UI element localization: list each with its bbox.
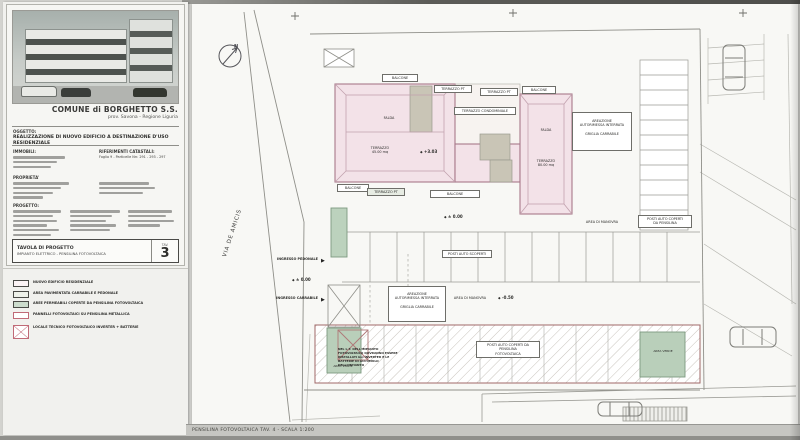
- scanned-drawing-photo: COMUNE di BORGHETTO S.S. prov. Savona - …: [0, 0, 800, 440]
- legend: NUOVO EDIFICIO RESIDENZIALE AREA PAVIMEN…: [13, 280, 181, 342]
- legend-label: PANNELLI FOTOVOLTAICI SU PENSILINA METAL…: [33, 312, 153, 317]
- legend-label: AREA PAVIMENTATA CARRABILE E PEDONALE: [33, 291, 153, 296]
- tavola-box: TAVOLA DI PROGETTO IMPIANTO ELETTRICO - …: [12, 239, 179, 263]
- north-letter: N: [234, 44, 238, 50]
- blurred-text-line: [13, 224, 47, 227]
- catasto-label: RIFERIMENTI CATASTALI:: [99, 149, 179, 154]
- blurred-text-line: [13, 210, 61, 213]
- proprieta-label: PROPRIETA': [13, 175, 93, 180]
- blurred-text-line: [99, 182, 149, 185]
- progetto-row: PROGETTO:: [13, 203, 179, 238]
- progetto-label: PROGETTO:: [13, 203, 64, 208]
- ingresso-carrabile-label: INGRESSO CARRABILE: [276, 296, 318, 300]
- blurred-text-line: [70, 229, 110, 232]
- legend-label: LOCALE TECNICO FOTOVOLTAICO INVERTER + B…: [33, 325, 153, 330]
- level-marker: ◆ ± 0.00: [292, 277, 311, 282]
- blurred-text-line: [128, 210, 172, 213]
- oggetto-section: OGGETTO: REALIZZAZIONE DI NUOVO EDIFICIO…: [13, 129, 178, 146]
- blurred-text-line: [13, 187, 61, 190]
- catasto-column: RIFERIMENTI CATASTALI: Foglio 9 - Partic…: [99, 149, 179, 170]
- blurred-text-line: [13, 182, 69, 185]
- catasto-text: Foglio 9 - Particelle Nrr. 291 - 293 - 2…: [99, 155, 179, 159]
- divider: [12, 126, 179, 127]
- balcone-label: BALCONE: [382, 74, 418, 82]
- balcone-label: BALCONE: [430, 190, 480, 198]
- legend-swatch-locale-tecnico: [13, 325, 29, 339]
- level-marker-icon: ◆: [292, 278, 295, 282]
- level-marker: ◆ +3.03: [420, 149, 437, 154]
- building-render-photo: [12, 10, 179, 104]
- tavola-label: TAVOLA DI PROGETTO: [17, 246, 147, 251]
- blurred-text-line: [99, 192, 143, 195]
- level-marker: ◆ -0.50: [498, 295, 514, 300]
- proprieta-column: PROPRIETA': [13, 175, 93, 201]
- photo-right-shadow: [790, 0, 800, 440]
- legend-label: NUOVO EDIFICIO RESIDENZIALE: [33, 280, 153, 285]
- terrazzo-80-label: TERRAZZO80.00 mq: [530, 159, 562, 168]
- photo-bottom-edge: [0, 436, 800, 440]
- site-plan-drawing: [192, 4, 798, 424]
- area-verde-label: AREA VERDE: [327, 365, 359, 369]
- terrazzo-pt-label: TERRAZZO PT: [434, 85, 472, 93]
- legend-item: PANNELLI FOTOVOLTAICI SU PENSILINA METAL…: [13, 312, 181, 319]
- entrance-arrow-icon: ▶: [321, 298, 325, 303]
- oggetto-label: OGGETTO:: [13, 129, 178, 134]
- photo-building-right: [129, 19, 173, 83]
- entrance-arrow-icon: ▶: [321, 259, 325, 264]
- posti-fv-label: POSTI AUTO COPERTI DA PENSILINAFOTOVOLTA…: [476, 341, 540, 358]
- legend-item: AREA PAVIMENTATA CARRABILE E PEDONALE: [13, 291, 181, 298]
- tavola-subject: IMPIANTO ELETTRICO - PENSILINA FOTOVOLTA…: [17, 252, 147, 256]
- level-marker: ◆ ± 0.00: [444, 214, 463, 219]
- level-marker-icon: ◆: [444, 215, 447, 219]
- divider: [12, 145, 179, 146]
- blurred-text-line: [13, 234, 51, 237]
- tavola-number-cell: TAV. 3: [151, 240, 178, 262]
- falda-label: FALDA: [374, 116, 404, 120]
- blurred-text-line: [128, 215, 166, 218]
- legend-swatch-panels: [13, 312, 29, 319]
- blurred-text-line: [13, 196, 43, 199]
- terrazzo-45-label: TERRAZZO45.00 mq: [360, 146, 400, 155]
- blurred-text-line: [13, 229, 59, 232]
- blurred-text-line: [70, 210, 120, 213]
- blurred-text-line: [13, 215, 53, 218]
- blurred-text-line: [13, 192, 53, 195]
- immobili-column: IMMOBILI:: [13, 149, 93, 170]
- posti-coperti-label: POSTI AUTO COPERTIDA PENSILINA: [638, 215, 692, 228]
- area-manovra-label: AREA DI MANOVRA: [580, 220, 624, 224]
- legend-item: AREE PERMEABILI COPERTE DA PENSILINA FOT…: [13, 301, 181, 308]
- legend-swatch-building: [13, 280, 29, 287]
- blurred-text-line: [70, 220, 106, 223]
- areazione-autorimessa-box: AREAZIONE AUTORIMESSA INTERRATA GRIGLIA …: [388, 286, 446, 322]
- falda-label: FALDA: [532, 128, 560, 132]
- immobili-label: IMMOBILI:: [13, 149, 93, 154]
- balcone-label: BALCONE: [337, 184, 369, 192]
- blurred-text-line: [13, 156, 65, 159]
- area-verde-label: AREA VERDE: [644, 350, 682, 354]
- blurred-text-line: [13, 161, 57, 164]
- commune-title: COMUNE di BORGHETTO S.S. prov. Savona - …: [13, 105, 178, 120]
- blurred-text-line: [99, 187, 155, 190]
- tav-number: 3: [152, 247, 178, 260]
- photo-building-left: [25, 29, 127, 83]
- photo-car: [133, 88, 167, 97]
- ingresso-pedonale-label: INGRESSO PEDONALE: [276, 257, 318, 261]
- blurred-text-line: [13, 166, 51, 169]
- areazione-autorimessa-box: AREAZIONE AUTORIMESSA INTERRATA GRIGLIA …: [572, 112, 632, 151]
- proprieta-column-2: [99, 175, 179, 201]
- level-marker-icon: ◆: [420, 150, 423, 154]
- footer-text: PENSILINA FOTOVOLTAICA TAV. 4 - SCALA 1:…: [186, 425, 800, 433]
- sheet-fold-line: [3, 268, 188, 269]
- posti-scoperti-label: POSTI AUTO SCOPERTI: [442, 250, 492, 258]
- title-block-sheet: COMUNE di BORGHETTO S.S. prov. Savona - …: [3, 2, 188, 435]
- legend-label: AREE PERMEABILI COPERTE DA PENSILINA FOT…: [33, 301, 153, 306]
- blurred-text-line: [70, 215, 112, 218]
- proprieta-row: PROPRIETA': [13, 175, 179, 201]
- immobili-catasto-row: IMMOBILI: RIFERIMENTI CATASTALI: Foglio …: [13, 149, 179, 170]
- photo-car: [21, 86, 57, 97]
- blurred-text-line: [70, 224, 116, 227]
- progetto-column-1: PROGETTO:: [13, 203, 64, 238]
- blurred-text-line: [128, 224, 160, 227]
- legend-swatch-paved: [13, 291, 29, 298]
- legend-item: NUOVO EDIFICIO RESIDENZIALE: [13, 280, 181, 287]
- terrazzo-condominiale-label: TERRAZZO CONDOMINIALE: [454, 107, 516, 115]
- legend-item: LOCALE TECNICO FOTOVOLTAICO INVERTER + B…: [13, 325, 181, 339]
- legend-swatch-green: [13, 301, 29, 308]
- area-manovra-label: AREA DI MANOVRA: [448, 296, 492, 300]
- balcone-label: BALCONE: [522, 86, 556, 94]
- tavola-main: TAVOLA DI PROGETTO IMPIANTO ELETTRICO - …: [13, 244, 151, 259]
- site-plan-sheet: VIA DE AMICIS N BALCONE TERRAZZO PT TERR…: [192, 4, 798, 424]
- level-marker-icon: ◆: [498, 296, 501, 300]
- title-block-panel: COMUNE di BORGHETTO S.S. prov. Savona - …: [6, 4, 185, 266]
- progetto-column-2: [70, 203, 121, 238]
- blurred-text-line: [128, 220, 174, 223]
- commune-name: COMUNE di BORGHETTO S.S.: [13, 105, 178, 114]
- terrazzo-pt-label: TERRAZZO PT: [480, 88, 518, 96]
- progetto-column-3: [128, 203, 179, 238]
- photo-car: [61, 88, 91, 97]
- blurred-text-line: [13, 220, 57, 223]
- terrazzo-pt-label: TERRAZZO PT: [367, 188, 405, 196]
- province-line: prov. Savona - Regione Liguria: [13, 115, 178, 120]
